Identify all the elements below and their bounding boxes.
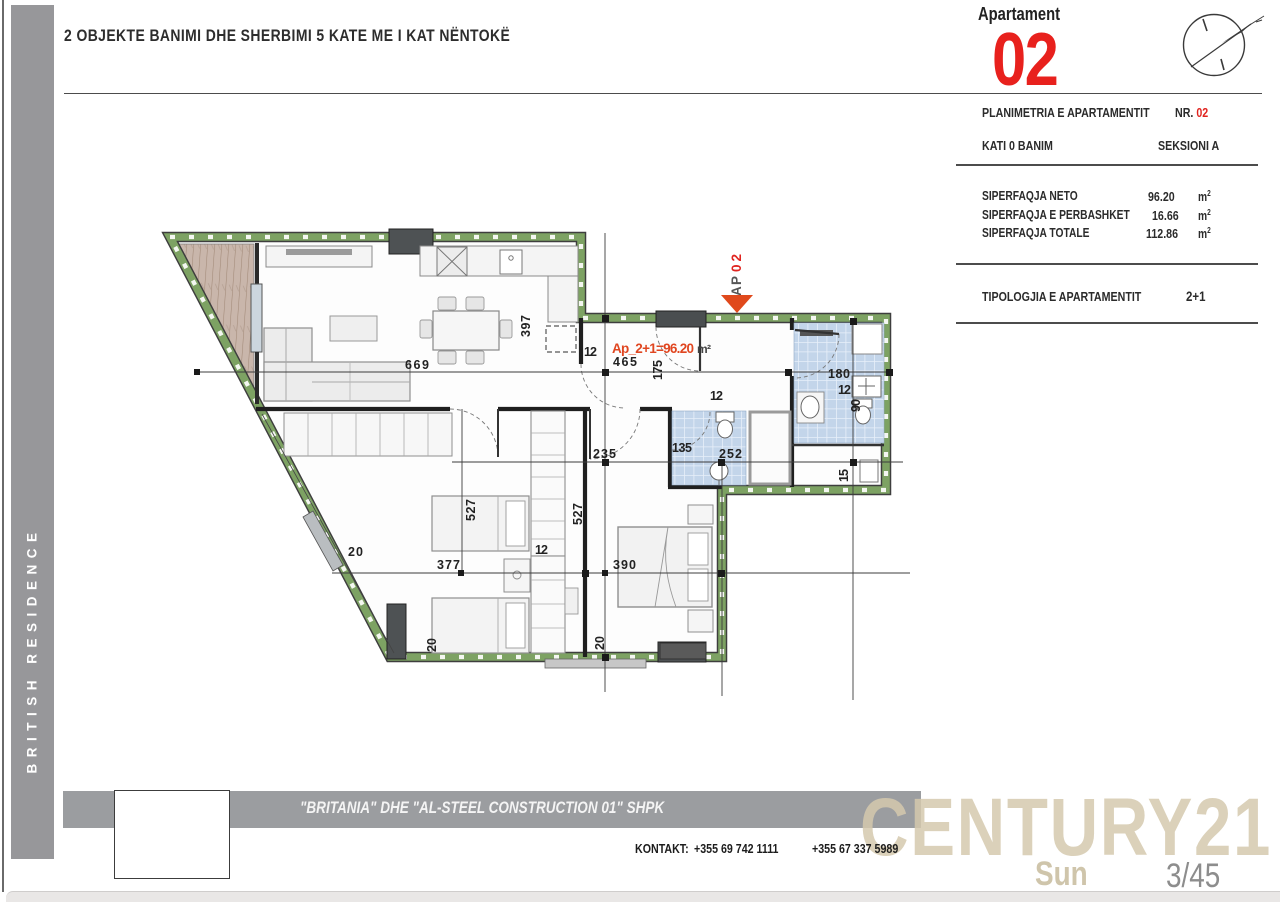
svg-text:20: 20 [425, 638, 439, 652]
svg-text:135: 135 [672, 441, 692, 455]
svg-text:252: 252 [719, 447, 742, 461]
svg-text:02: 02 [729, 254, 744, 272]
svg-text:12: 12 [710, 389, 723, 403]
svg-text:20: 20 [348, 545, 363, 559]
svg-text:AP: AP [729, 276, 744, 296]
svg-text:180: 180 [828, 367, 850, 381]
svg-text:377: 377 [437, 558, 460, 572]
svg-text:Ap_2+1=96.20: Ap_2+1=96.20 [612, 341, 694, 356]
svg-text:527: 527 [464, 499, 478, 521]
svg-text:175: 175 [651, 360, 665, 380]
svg-text:235: 235 [593, 447, 616, 461]
svg-text:397: 397 [519, 315, 533, 337]
svg-text:465: 465 [613, 355, 637, 369]
svg-text:m²: m² [697, 342, 711, 356]
svg-text:90: 90 [849, 399, 863, 412]
svg-text:15: 15 [837, 469, 851, 482]
svg-text:12: 12 [584, 345, 597, 359]
svg-text:390: 390 [613, 558, 636, 572]
svg-text:12: 12 [535, 543, 548, 557]
svg-text:12: 12 [838, 383, 851, 397]
svg-text:669: 669 [405, 358, 429, 372]
svg-text:20: 20 [593, 636, 607, 650]
svg-text:527: 527 [571, 503, 585, 525]
